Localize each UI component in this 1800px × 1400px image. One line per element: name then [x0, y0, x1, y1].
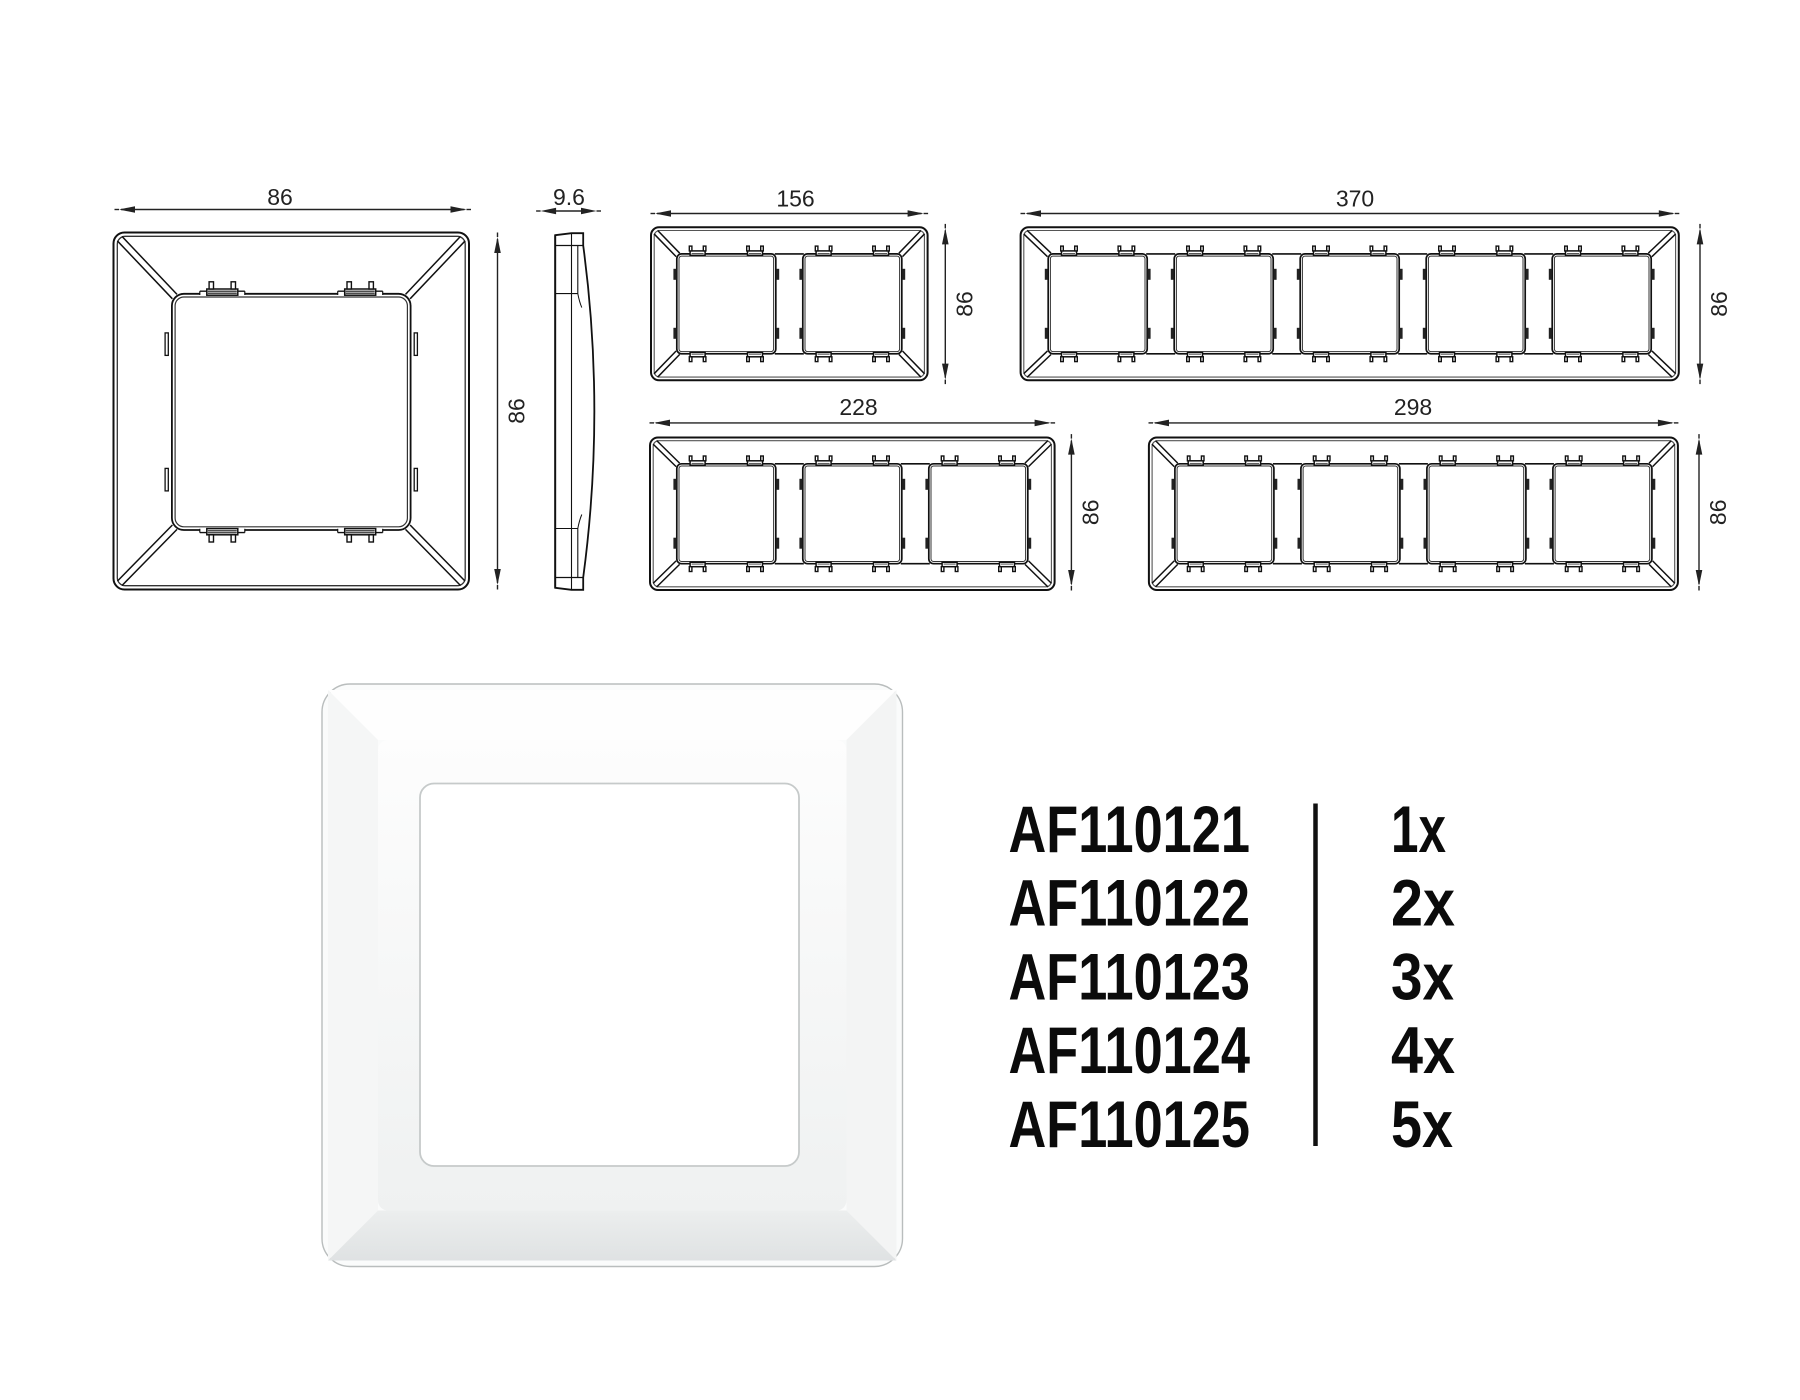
svg-text:228: 228 — [839, 394, 877, 420]
svg-text:86: 86 — [1077, 500, 1103, 526]
svg-text:298: 298 — [1394, 394, 1432, 420]
svg-text:156: 156 — [776, 185, 814, 211]
svg-text:AF110125: AF110125 — [1009, 1088, 1251, 1161]
svg-text:86: 86 — [267, 184, 293, 210]
svg-text:86: 86 — [504, 398, 530, 424]
svg-text:86: 86 — [1705, 500, 1731, 526]
svg-text:AF110121: AF110121 — [1009, 793, 1251, 866]
svg-text:86: 86 — [1706, 291, 1732, 317]
svg-text:2x: 2x — [1391, 867, 1455, 940]
svg-text:3x: 3x — [1391, 940, 1454, 1013]
svg-text:AF110123: AF110123 — [1009, 940, 1251, 1013]
svg-text:4x: 4x — [1391, 1014, 1455, 1087]
svg-text:1x: 1x — [1391, 793, 1446, 866]
svg-text:9.6: 9.6 — [553, 184, 585, 210]
svg-text:AF110122: AF110122 — [1009, 867, 1251, 940]
svg-text:AF110124: AF110124 — [1009, 1014, 1251, 1087]
svg-text:370: 370 — [1336, 185, 1374, 211]
svg-text:5x: 5x — [1391, 1088, 1453, 1161]
svg-text:86: 86 — [951, 291, 977, 317]
